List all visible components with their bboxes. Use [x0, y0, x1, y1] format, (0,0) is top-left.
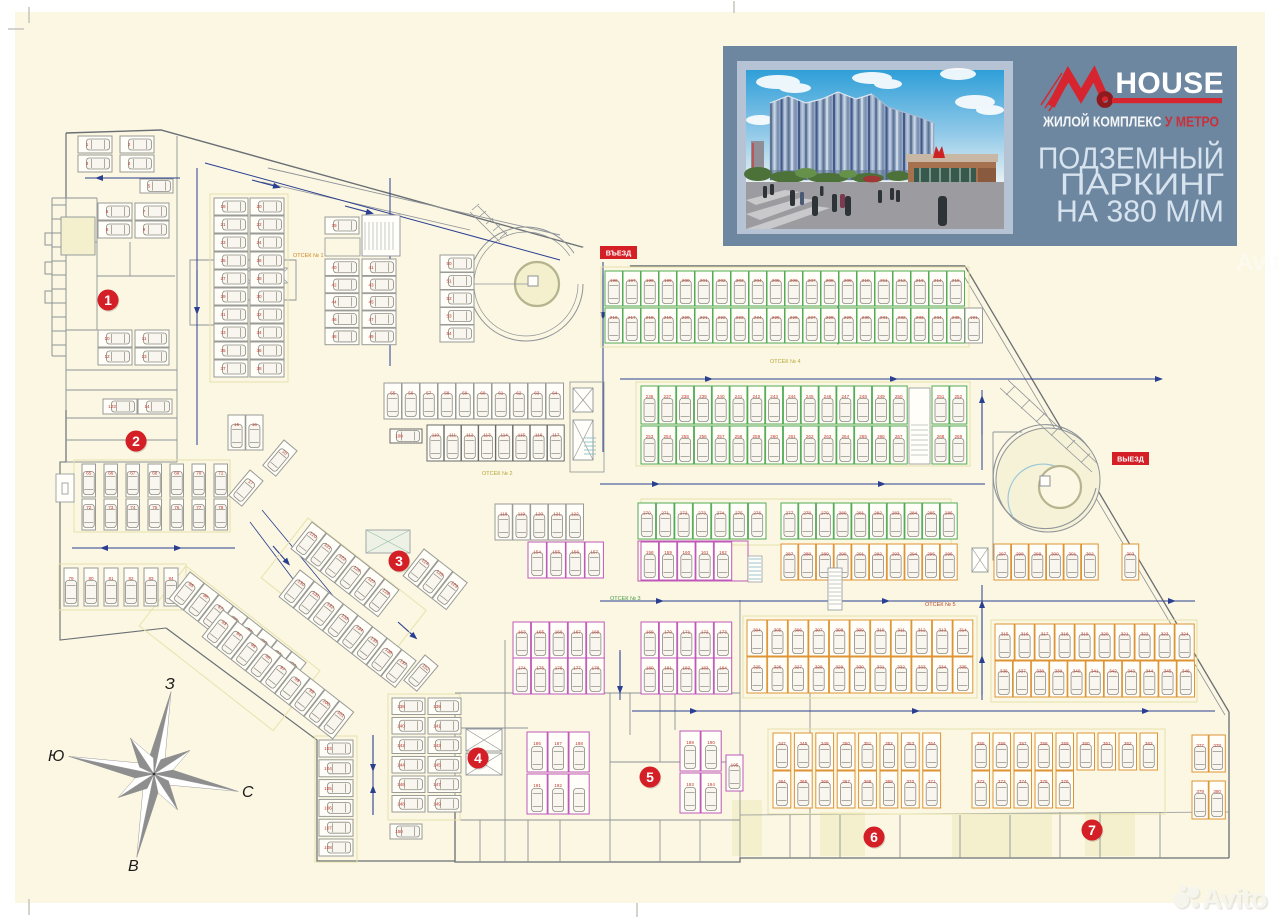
svg-text:114: 114: [501, 433, 509, 438]
svg-text:305: 305: [774, 628, 782, 633]
svg-text:59: 59: [462, 391, 468, 396]
svg-text:167: 167: [573, 630, 581, 635]
svg-text:377: 377: [1196, 743, 1204, 748]
svg-text:35: 35: [220, 348, 226, 353]
svg-text:197: 197: [628, 278, 636, 283]
svg-text:48: 48: [331, 334, 337, 339]
svg-text:121: 121: [553, 512, 561, 517]
svg-text:163: 163: [518, 630, 526, 635]
svg-text:340: 340: [1073, 669, 1081, 674]
svg-text:302: 302: [1086, 552, 1094, 557]
svg-text:213: 213: [916, 278, 924, 283]
svg-text:199: 199: [664, 278, 672, 283]
svg-text:352: 352: [885, 741, 893, 746]
svg-text:138: 138: [397, 704, 405, 709]
svg-text:344: 344: [1146, 669, 1154, 674]
svg-text:292: 292: [874, 552, 882, 557]
svg-text:309: 309: [856, 628, 864, 633]
svg-text:66: 66: [108, 471, 114, 476]
svg-text:265: 265: [859, 434, 867, 439]
svg-text:212: 212: [898, 278, 906, 283]
svg-text:286: 286: [945, 511, 953, 516]
svg-text:15: 15: [234, 422, 240, 427]
svg-text:322: 322: [1141, 632, 1149, 637]
svg-text:319: 319: [1081, 632, 1089, 637]
svg-text:315: 315: [1001, 632, 1009, 637]
svg-text:В: В: [128, 858, 139, 875]
svg-text:347: 347: [778, 741, 786, 746]
svg-text:326: 326: [774, 665, 782, 670]
svg-text:367: 367: [842, 779, 850, 784]
svg-text:175: 175: [536, 666, 544, 671]
svg-text:255: 255: [681, 434, 689, 439]
svg-text:144: 144: [397, 762, 405, 767]
svg-text:334: 334: [938, 665, 946, 670]
svg-text:183: 183: [701, 666, 709, 671]
svg-text:316: 316: [1021, 632, 1029, 637]
svg-text:373: 373: [998, 779, 1006, 784]
svg-text:321: 321: [1121, 632, 1129, 637]
svg-text:69: 69: [174, 471, 180, 476]
svg-text:351: 351: [864, 741, 872, 746]
svg-text:360: 360: [1082, 741, 1090, 746]
svg-text:173: 173: [719, 630, 727, 635]
svg-text:HOUSE: HOUSE: [1115, 67, 1224, 100]
svg-text:109: 109: [395, 434, 403, 439]
svg-text:320: 320: [1101, 632, 1109, 637]
svg-text:ОТСЕК № 4: ОТСЕК № 4: [770, 359, 801, 365]
svg-text:1: 1: [104, 292, 112, 308]
svg-text:84: 84: [168, 576, 174, 581]
svg-text:277: 277: [786, 511, 794, 516]
svg-text:235: 235: [952, 315, 960, 320]
svg-text:237: 237: [663, 394, 671, 399]
svg-text:285: 285: [927, 511, 935, 516]
svg-text:198: 198: [646, 278, 654, 283]
svg-text:39: 39: [331, 223, 337, 228]
svg-text:6: 6: [870, 829, 878, 845]
svg-text:218: 218: [646, 315, 654, 320]
svg-text:12: 12: [104, 354, 110, 359]
svg-text:287: 287: [786, 552, 794, 557]
svg-text:158: 158: [646, 550, 654, 555]
svg-text:380: 380: [1213, 789, 1221, 794]
svg-text:ОТСЕК № 5: ОТСЕК № 5: [925, 602, 956, 608]
svg-text:73: 73: [108, 505, 114, 510]
svg-text:141: 141: [433, 723, 441, 728]
svg-text:116: 116: [535, 433, 543, 438]
svg-text:330: 330: [856, 665, 864, 670]
svg-text:159: 159: [664, 550, 672, 555]
svg-text:71: 71: [218, 471, 224, 476]
svg-text:11: 11: [142, 336, 147, 341]
svg-text:ВЫЕЗД: ВЫЕЗД: [1117, 455, 1144, 464]
svg-text:27: 27: [220, 276, 226, 281]
svg-text:145: 145: [433, 762, 441, 767]
svg-text:10: 10: [104, 336, 110, 341]
svg-text:192: 192: [554, 783, 562, 788]
svg-text:62: 62: [516, 391, 522, 396]
svg-text:65: 65: [86, 471, 92, 476]
svg-text:333: 333: [918, 665, 926, 670]
svg-text:1: 1: [86, 142, 89, 147]
svg-text:160: 160: [683, 550, 691, 555]
svg-text:274: 274: [717, 511, 725, 516]
svg-text:143: 143: [433, 743, 441, 748]
svg-text:2: 2: [132, 433, 140, 449]
svg-text:С: С: [242, 784, 254, 801]
svg-text:2: 2: [128, 142, 131, 147]
svg-text:113: 113: [483, 433, 491, 438]
svg-text:72: 72: [86, 505, 92, 510]
svg-text:338: 338: [1036, 669, 1044, 674]
svg-text:170: 170: [664, 630, 672, 635]
svg-text:354: 354: [928, 741, 936, 746]
svg-text:67: 67: [130, 471, 136, 476]
svg-text:Ю: Ю: [48, 748, 64, 765]
svg-text:119: 119: [518, 512, 526, 517]
svg-text:357: 357: [1019, 741, 1027, 746]
svg-text:356: 356: [998, 741, 1006, 746]
svg-text:252: 252: [954, 394, 962, 399]
svg-text:37: 37: [220, 366, 226, 371]
svg-text:60: 60: [480, 391, 486, 396]
svg-text:188: 188: [575, 741, 583, 746]
svg-text:156: 156: [571, 550, 579, 555]
svg-text:184: 184: [719, 666, 727, 671]
svg-text:236: 236: [646, 394, 654, 399]
svg-text:ОТСЕК № 1: ОТСЕК № 1: [293, 253, 324, 259]
svg-text:328: 328: [815, 665, 823, 670]
svg-text:249: 249: [877, 394, 885, 399]
svg-text:111: 111: [449, 433, 456, 438]
svg-text:105: 105: [324, 786, 332, 791]
svg-text:154: 154: [533, 550, 541, 555]
svg-text:293: 293: [892, 552, 900, 557]
svg-text:310: 310: [877, 628, 885, 633]
svg-text:370: 370: [906, 779, 914, 784]
svg-text:4: 4: [474, 750, 482, 766]
svg-text:171: 171: [683, 630, 691, 635]
svg-text:335: 335: [959, 665, 967, 670]
svg-text:172: 172: [701, 630, 709, 635]
svg-text:51: 51: [446, 279, 452, 284]
svg-text:257: 257: [717, 434, 725, 439]
svg-text:68: 68: [152, 471, 158, 476]
svg-text:8: 8: [106, 227, 109, 232]
svg-text:4: 4: [128, 161, 131, 166]
svg-text:78: 78: [218, 505, 224, 510]
svg-text:70: 70: [196, 471, 202, 476]
svg-text:245: 245: [806, 394, 814, 399]
svg-text:295: 295: [927, 552, 935, 557]
svg-text:204: 204: [754, 278, 762, 283]
svg-text:191: 191: [970, 315, 978, 320]
svg-text:323: 323: [1161, 632, 1169, 637]
svg-text:44: 44: [331, 300, 337, 305]
svg-text:139: 139: [433, 704, 441, 709]
svg-text:30: 30: [256, 294, 262, 299]
svg-text:301: 301: [1069, 552, 1077, 557]
svg-text:371: 371: [928, 779, 936, 784]
svg-text:282: 282: [874, 511, 882, 516]
svg-text:104: 104: [324, 766, 332, 771]
svg-text:182: 182: [683, 666, 691, 671]
svg-text:239: 239: [699, 394, 707, 399]
svg-text:280: 280: [839, 511, 847, 516]
svg-text:219: 219: [664, 315, 672, 320]
svg-text:38: 38: [256, 366, 262, 371]
svg-text:232: 232: [898, 315, 906, 320]
svg-text:251: 251: [937, 394, 945, 399]
svg-text:220: 220: [682, 315, 690, 320]
svg-text:33: 33: [220, 330, 226, 335]
svg-text:348: 348: [799, 741, 807, 746]
svg-text:23: 23: [220, 240, 226, 245]
svg-text:361: 361: [1103, 741, 1111, 746]
svg-text:271: 271: [661, 511, 669, 516]
svg-text:238: 238: [681, 394, 689, 399]
svg-text:241: 241: [735, 394, 743, 399]
svg-text:284: 284: [910, 511, 918, 516]
svg-text:214: 214: [934, 278, 942, 283]
svg-text:64: 64: [552, 391, 558, 396]
svg-text:250: 250: [895, 394, 903, 399]
svg-text:176: 176: [555, 666, 563, 671]
svg-text:5: 5: [148, 184, 151, 189]
svg-text:7: 7: [143, 209, 146, 214]
svg-text:Avito: Avito: [1236, 249, 1280, 276]
svg-text:З: З: [165, 676, 175, 693]
svg-text:189: 189: [686, 740, 694, 745]
svg-text:209: 209: [844, 278, 852, 283]
svg-text:157: 157: [590, 550, 598, 555]
svg-text:314: 314: [959, 628, 967, 633]
svg-text:281: 281: [856, 511, 864, 516]
svg-text:29: 29: [220, 294, 226, 299]
svg-text:306: 306: [794, 628, 802, 633]
svg-text:206: 206: [790, 278, 798, 283]
svg-text:269: 269: [954, 434, 962, 439]
svg-text:ОТСЕК № 2: ОТСЕК № 2: [482, 471, 513, 477]
svg-text:248: 248: [859, 394, 867, 399]
svg-text:224: 224: [754, 315, 762, 320]
svg-text:41: 41: [368, 265, 374, 270]
svg-text:259: 259: [752, 434, 760, 439]
svg-text:169: 169: [646, 630, 654, 635]
svg-text:223: 223: [736, 315, 744, 320]
svg-text:225: 225: [772, 315, 780, 320]
svg-text:16: 16: [252, 422, 258, 427]
svg-text:303: 303: [1127, 552, 1135, 557]
svg-text:324: 324: [1181, 632, 1189, 637]
svg-text:20: 20: [256, 204, 262, 209]
svg-text:227: 227: [808, 315, 816, 320]
svg-text:296: 296: [945, 552, 953, 557]
svg-text:329: 329: [835, 665, 843, 670]
svg-text:363: 363: [1145, 741, 1153, 746]
svg-text:283: 283: [892, 511, 900, 516]
svg-text:341: 341: [1091, 669, 1099, 674]
svg-text:55: 55: [390, 391, 396, 396]
svg-text:240: 240: [717, 394, 725, 399]
svg-text:273: 273: [698, 511, 706, 516]
svg-text:217: 217: [628, 315, 636, 320]
svg-text:270: 270: [643, 511, 651, 516]
svg-text:45: 45: [368, 300, 374, 305]
svg-text:28: 28: [256, 276, 262, 281]
svg-text:43: 43: [368, 282, 374, 287]
svg-text:247: 247: [841, 394, 849, 399]
svg-text:177: 177: [573, 666, 581, 671]
svg-text:244: 244: [788, 394, 796, 399]
svg-text:256: 256: [699, 434, 707, 439]
svg-text:246: 246: [824, 394, 832, 399]
svg-text:215: 215: [952, 278, 960, 283]
svg-text:201: 201: [700, 278, 708, 283]
svg-text:110: 110: [432, 433, 440, 438]
svg-text:6: 6: [106, 209, 109, 214]
svg-text:307: 307: [815, 628, 823, 633]
svg-text:374: 374: [1019, 779, 1027, 784]
svg-text:345: 345: [1164, 669, 1172, 674]
svg-text:57: 57: [426, 391, 432, 396]
svg-text:366: 366: [821, 779, 829, 784]
svg-text:291: 291: [856, 552, 864, 557]
svg-text:162: 162: [719, 550, 727, 555]
svg-text:40: 40: [331, 265, 337, 270]
svg-text:267: 267: [895, 434, 903, 439]
svg-text:365: 365: [799, 779, 807, 784]
svg-text:21: 21: [220, 222, 226, 227]
svg-text:58: 58: [444, 391, 450, 396]
svg-text:123: 123: [108, 404, 116, 409]
svg-text:186: 186: [533, 741, 541, 746]
svg-text:3: 3: [86, 161, 89, 166]
svg-text:147: 147: [433, 782, 441, 787]
svg-text:187: 187: [554, 741, 562, 746]
svg-text:349: 349: [821, 741, 829, 746]
svg-text:346: 346: [1182, 669, 1190, 674]
svg-text:258: 258: [735, 434, 743, 439]
svg-text:196: 196: [610, 278, 618, 283]
svg-text:5: 5: [646, 769, 654, 785]
svg-text:278: 278: [803, 511, 811, 516]
svg-text:149: 149: [433, 801, 441, 806]
svg-text:19: 19: [220, 204, 226, 209]
svg-text:297: 297: [999, 552, 1007, 557]
svg-text:148: 148: [397, 801, 405, 806]
svg-text:14: 14: [144, 404, 150, 409]
svg-text:193: 193: [686, 782, 694, 787]
svg-text:242: 242: [752, 394, 760, 399]
svg-text:52: 52: [446, 296, 452, 301]
svg-text:228: 228: [826, 315, 834, 320]
svg-text:226: 226: [790, 315, 798, 320]
svg-text:205: 205: [772, 278, 780, 283]
svg-text:190: 190: [707, 740, 715, 745]
svg-text:ЖИЛОЙ КОМПЛЕКС У МЕТРО: ЖИЛОЙ КОМПЛЕКС У МЕТРО: [1042, 113, 1219, 131]
svg-text:74: 74: [130, 505, 136, 510]
svg-text:275: 275: [735, 511, 743, 516]
svg-text:54: 54: [446, 331, 452, 336]
svg-text:200: 200: [682, 278, 690, 283]
svg-text:202: 202: [718, 278, 726, 283]
svg-text:81: 81: [108, 576, 114, 581]
svg-text:230: 230: [862, 315, 870, 320]
svg-text:289: 289: [821, 552, 829, 557]
svg-text:272: 272: [680, 511, 688, 516]
svg-text:300: 300: [1051, 552, 1059, 557]
svg-text:379: 379: [1196, 789, 1204, 794]
svg-text:332: 332: [897, 665, 905, 670]
svg-text:216: 216: [610, 315, 618, 320]
svg-text:369: 369: [885, 779, 893, 784]
svg-text:142: 142: [397, 743, 405, 748]
svg-text:254: 254: [663, 434, 671, 439]
svg-text:50: 50: [446, 261, 452, 266]
svg-text:253: 253: [646, 434, 654, 439]
svg-text:ВЪЕЗД: ВЪЕЗД: [606, 249, 632, 258]
svg-text:13: 13: [141, 354, 147, 359]
svg-text:233: 233: [916, 315, 924, 320]
svg-text:150: 150: [395, 829, 403, 834]
svg-text:112: 112: [466, 433, 474, 438]
svg-text:279: 279: [821, 511, 829, 516]
svg-text:75: 75: [152, 505, 158, 510]
svg-text:208: 208: [826, 278, 834, 283]
svg-text:222: 222: [718, 315, 726, 320]
svg-text:308: 308: [835, 628, 843, 633]
svg-text:118: 118: [500, 512, 508, 517]
svg-text:194: 194: [707, 782, 715, 787]
svg-text:294: 294: [910, 552, 918, 557]
svg-text:155: 155: [552, 550, 560, 555]
svg-text:3: 3: [395, 553, 403, 569]
svg-text:210: 210: [862, 278, 870, 283]
svg-text:34: 34: [256, 330, 262, 335]
svg-text:203: 203: [736, 278, 744, 283]
svg-text:337: 337: [1018, 669, 1026, 674]
svg-text:266: 266: [877, 434, 885, 439]
svg-text:7: 7: [1088, 822, 1096, 838]
svg-text:299: 299: [1034, 552, 1042, 557]
svg-text:207: 207: [808, 278, 816, 283]
svg-text:336: 336: [1000, 669, 1008, 674]
svg-text:166: 166: [555, 630, 563, 635]
svg-text:364: 364: [778, 779, 786, 784]
svg-text:76: 76: [174, 505, 180, 510]
svg-text:342: 342: [1109, 669, 1117, 674]
svg-text:276: 276: [753, 511, 761, 516]
svg-text:234: 234: [934, 315, 942, 320]
svg-text:140: 140: [397, 723, 405, 728]
svg-text:298: 298: [1016, 552, 1024, 557]
svg-text:317: 317: [1041, 632, 1049, 637]
svg-text:106: 106: [324, 806, 332, 811]
svg-text:22: 22: [256, 222, 262, 227]
svg-text:191: 191: [533, 783, 541, 788]
svg-text:53: 53: [446, 314, 452, 319]
svg-text:122: 122: [571, 512, 579, 517]
svg-text:211: 211: [880, 278, 888, 283]
svg-text:229: 229: [844, 315, 852, 320]
svg-text:339: 339: [1055, 669, 1063, 674]
svg-text:375: 375: [1040, 779, 1048, 784]
svg-text:63: 63: [534, 391, 540, 396]
svg-text:221: 221: [700, 315, 708, 320]
svg-text:327: 327: [794, 665, 802, 670]
